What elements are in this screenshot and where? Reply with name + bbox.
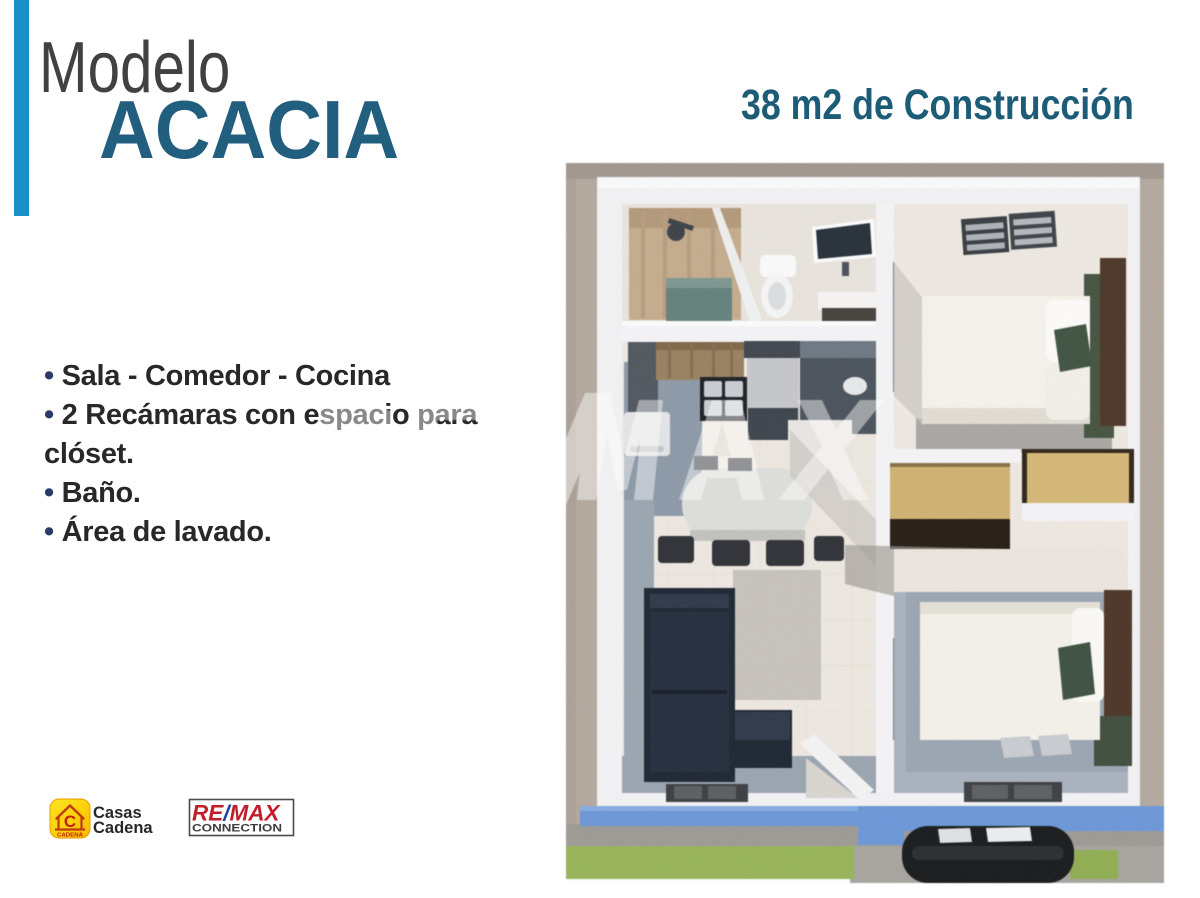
svg-text:C: C — [64, 812, 76, 831]
svg-text:Cadena: Cadena — [93, 819, 153, 837]
svg-text:CONNECTION: CONNECTION — [192, 823, 282, 835]
svg-text:CADENA: CADENA — [57, 833, 83, 839]
